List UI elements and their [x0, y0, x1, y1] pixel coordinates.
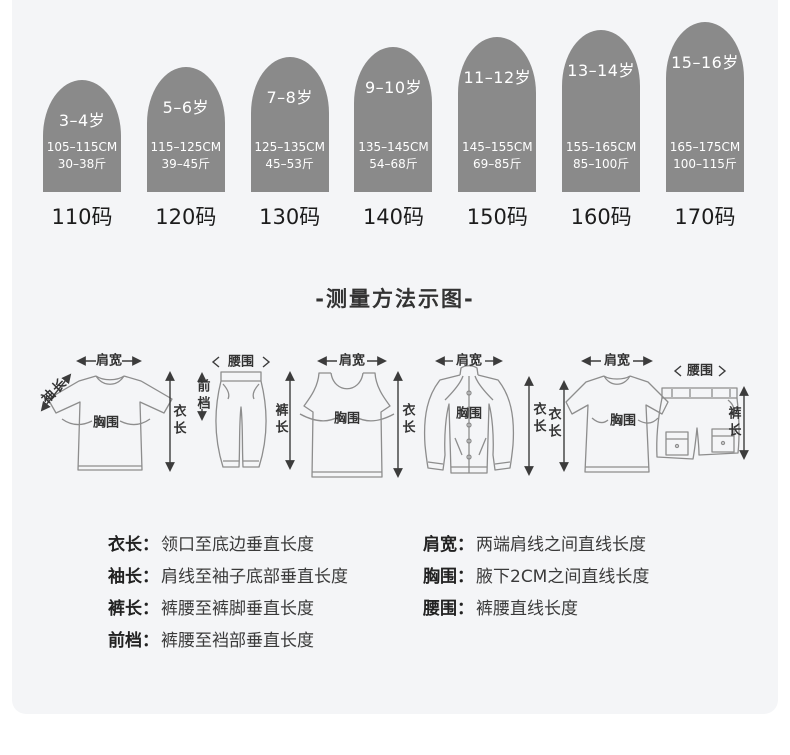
definition-desc: 肩线至袖子底部垂直长度: [161, 562, 348, 587]
age-range-label: 15–16岁: [666, 49, 744, 73]
definition-row: 肩宽：两端肩线之间直线长度: [423, 526, 649, 558]
pants-outline: [216, 372, 266, 467]
weight-range-label: 39–45斤: [141, 156, 231, 173]
definition-desc: 裤腰至裤脚垂直长度: [161, 594, 314, 619]
size-arch: 15–16岁 165–175CM 100–115斤: [666, 22, 744, 192]
size-arches-row: 3–4岁 105–115CM 30–38斤 110码 5–6岁 115–125C…: [43, 0, 744, 228]
age-range-label: 7–8岁: [251, 84, 329, 108]
body-ranges: 125–135CM 45–53斤: [245, 139, 335, 173]
shoulder-width-label: 肩宽: [604, 355, 630, 368]
shoulder-width-label: 肩宽: [456, 355, 482, 368]
definition-colon: ：: [457, 594, 474, 619]
definition-desc: 两端肩线之间直线长度: [476, 530, 646, 555]
definition-row: 袖长：肩线至袖子底部垂直长度: [108, 558, 348, 590]
pants-length-label: 裤长: [274, 403, 287, 437]
definition-colon: ：: [142, 594, 159, 619]
size-column: 15–16岁 165–175CM 100–115斤 170码: [666, 22, 744, 228]
age-range-label: 13–14岁: [562, 57, 640, 81]
definitions-right-column: 肩宽：两端肩线之间直线长度 胸围：腋下2CM之间直线长度 腰围：裤腰直线长度: [423, 526, 649, 622]
age-range-label: 11–12岁: [458, 64, 536, 88]
definition-term: 胸围: [423, 562, 457, 587]
size-code-label: 120码: [155, 201, 216, 228]
body-ranges: 135–145CM 54–68斤: [348, 139, 438, 173]
size-chart-panel: 3–4岁 105–115CM 30–38斤 110码 5–6岁 115–125C…: [0, 0, 790, 755]
shoulder-width-label: 肩宽: [96, 355, 122, 368]
weight-range-label: 100–115斤: [660, 156, 750, 173]
body-ranges: 165–175CM 100–115斤: [660, 139, 750, 173]
size-column: 13–14岁 155–165CM 85–100斤 160码: [562, 30, 640, 228]
size-arch: 11–12岁 145–155CM 69–85斤: [458, 37, 536, 192]
body-ranges: 155–165CM 85–100斤: [556, 139, 646, 173]
size-code-label: 150码: [467, 201, 528, 228]
shoulder-width-label: 肩宽: [339, 355, 365, 368]
height-range-label: 165–175CM: [660, 139, 750, 156]
size-arch: 7–8岁 125–135CM 45–53斤: [251, 57, 329, 192]
definition-colon: ：: [457, 530, 474, 555]
age-range-label: 9–10岁: [354, 74, 432, 98]
definition-term: 袖长: [108, 562, 142, 587]
definition-row: 腰围：裤腰直线长度: [423, 590, 649, 622]
measurement-title: -测量方法示图-: [0, 283, 790, 313]
size-arch: 5–6岁 115–125CM 39–45斤: [147, 67, 225, 192]
waist-label: 腰围: [687, 365, 713, 378]
measurement-diagrams-svg: [12, 338, 778, 503]
definition-row: 前档：裤腰至裆部垂直长度: [108, 622, 348, 654]
definition-row: 裤长：裤腰至裤脚垂直长度: [108, 590, 348, 622]
body-ranges: 105–115CM 30–38斤: [37, 139, 127, 173]
definition-colon: ：: [142, 562, 159, 587]
height-range-label: 105–115CM: [37, 139, 127, 156]
chest-label: 胸围: [610, 415, 636, 428]
height-range-label: 145–155CM: [452, 139, 542, 156]
definition-colon: ：: [457, 562, 474, 587]
front-rise-label: 前档: [196, 379, 209, 413]
definition-row: 胸围：腋下2CM之间直线长度: [423, 558, 649, 590]
definition-desc: 腋下2CM之间直线长度: [476, 562, 649, 587]
garment-length-label: 衣长: [532, 402, 545, 436]
size-code-label: 160码: [571, 201, 632, 228]
weight-range-label: 69–85斤: [452, 156, 542, 173]
definition-desc: 领口至底边垂直长度: [161, 530, 314, 555]
size-code-label: 110码: [51, 201, 112, 228]
garment-length-label: 衣长: [547, 407, 560, 441]
definition-term: 前档: [108, 626, 142, 651]
size-code-label: 170码: [674, 201, 735, 228]
garment-length-label: 衣长: [172, 404, 185, 438]
body-ranges: 115–125CM 39–45斤: [141, 139, 231, 173]
size-arch: 3–4岁 105–115CM 30–38斤: [43, 80, 121, 192]
size-arch: 9–10岁 135–145CM 54–68斤: [354, 47, 432, 192]
size-column: 3–4岁 105–115CM 30–38斤 110码: [43, 80, 121, 228]
definition-term: 腰围: [423, 594, 457, 619]
size-code-label: 130码: [259, 201, 320, 228]
weight-range-label: 54–68斤: [348, 156, 438, 173]
height-range-label: 125–135CM: [245, 139, 335, 156]
size-arch: 13–14岁 155–165CM 85–100斤: [562, 30, 640, 192]
height-range-label: 155–165CM: [556, 139, 646, 156]
weight-range-label: 85–100斤: [556, 156, 646, 173]
chest-label: 胸围: [93, 417, 119, 430]
definition-term: 衣长: [108, 530, 142, 555]
size-code-label: 140码: [363, 201, 424, 228]
definition-desc: 裤腰至裆部垂直长度: [161, 626, 314, 651]
measure-arrows: [42, 357, 744, 476]
definition-term: 肩宽: [423, 530, 457, 555]
height-range-label: 115–125CM: [141, 139, 231, 156]
weight-range-label: 30–38斤: [37, 156, 127, 173]
size-column: 7–8岁 125–135CM 45–53斤 130码: [251, 57, 329, 228]
definition-desc: 裤腰直线长度: [476, 594, 578, 619]
height-range-label: 135–145CM: [348, 139, 438, 156]
definition-row: 衣长：领口至底边垂直长度: [108, 526, 348, 558]
age-range-label: 3–4岁: [43, 107, 121, 131]
weight-range-label: 45–53斤: [245, 156, 335, 173]
chest-label: 胸围: [456, 408, 482, 421]
pants-length-label: 裤长: [727, 406, 740, 440]
definition-term: 裤长: [108, 594, 142, 619]
size-column: 11–12岁 145–155CM 69–85斤 150码: [458, 37, 536, 228]
definitions-left-column: 衣长：领口至底边垂直长度 袖长：肩线至袖子底部垂直长度 裤长：裤腰至裤脚垂直长度…: [108, 526, 348, 654]
body-ranges: 145–155CM 69–85斤: [452, 139, 542, 173]
definition-colon: ：: [142, 626, 159, 651]
size-column: 5–6岁 115–125CM 39–45斤 120码: [147, 67, 225, 228]
garment-length-label: 衣长: [401, 403, 414, 437]
definition-colon: ：: [142, 530, 159, 555]
chest-label: 胸围: [334, 413, 360, 426]
age-range-label: 5–6岁: [147, 94, 225, 118]
waist-label: 腰围: [228, 356, 254, 369]
size-column: 9–10岁 135–145CM 54–68斤 140码: [354, 47, 432, 228]
